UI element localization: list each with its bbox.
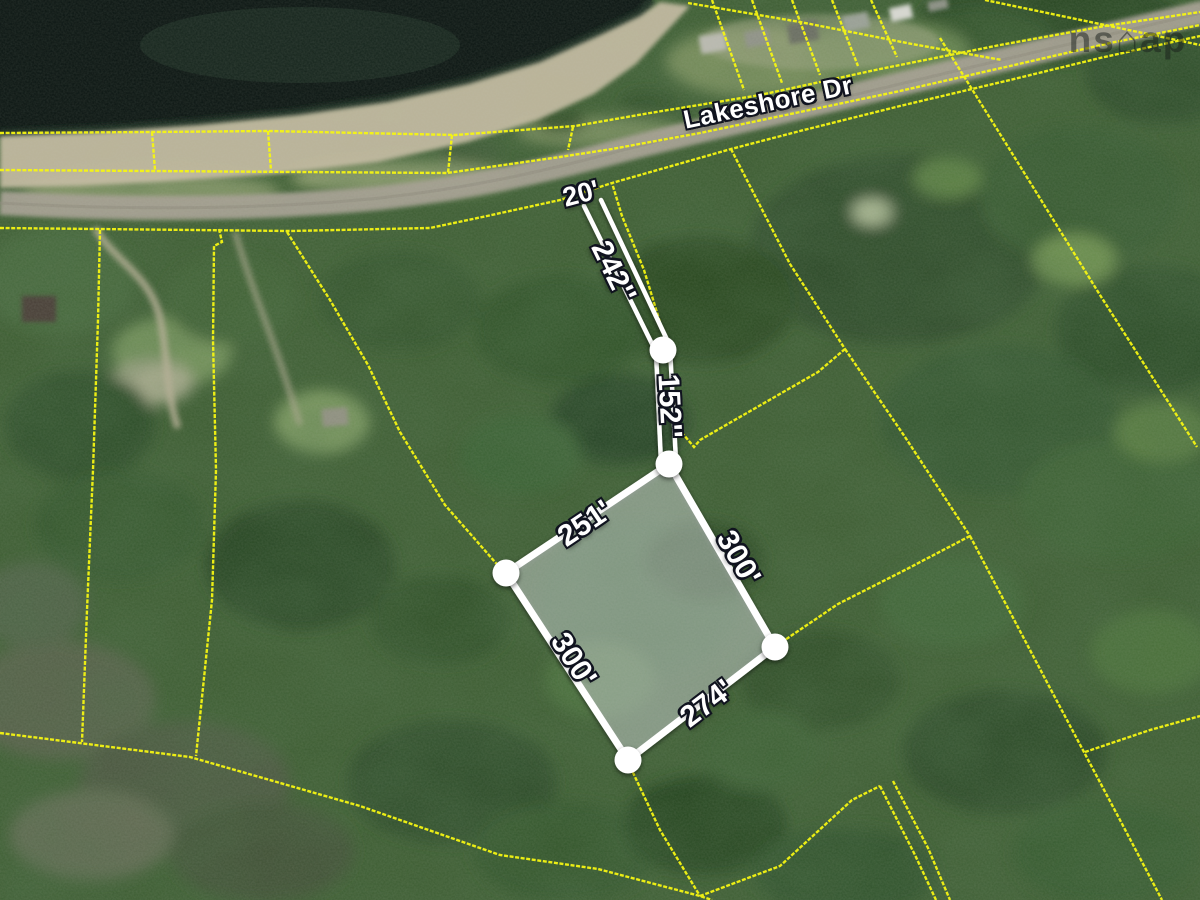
satellite-map-view[interactable]: Lakeshore Dr 20' 242'' 152'' 251' 300' 3…	[0, 0, 1200, 900]
map-canvas	[0, 0, 1200, 900]
vertex-handle[interactable]	[615, 747, 642, 774]
vertex-handle[interactable]	[493, 560, 520, 587]
measurement-row-lower-label: 152''	[652, 373, 685, 439]
vertex-handle[interactable]	[762, 634, 789, 661]
photo-grain-overlay	[0, 0, 1200, 900]
provider-watermark: ns⌂ap	[1069, 19, 1188, 61]
vertex-handle[interactable]	[656, 451, 683, 478]
vertex-handle[interactable]	[650, 337, 677, 364]
